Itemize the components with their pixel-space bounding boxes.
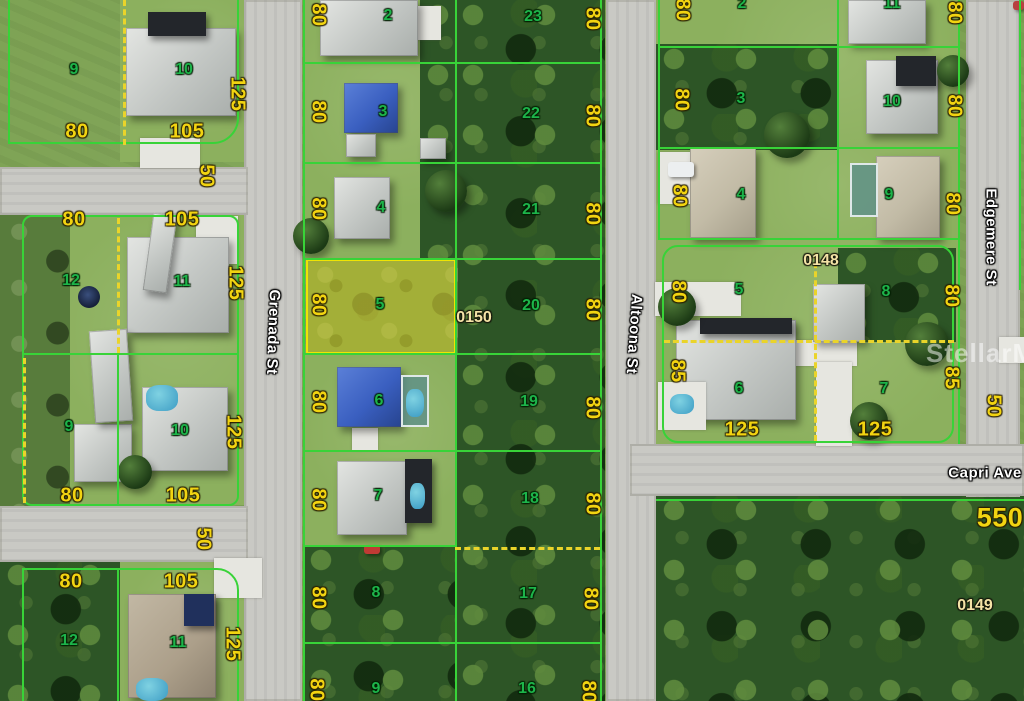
parcel-id-0150: 0150: [456, 309, 492, 327]
street-label-capri-ave: Capri Ave: [948, 465, 1021, 482]
parcel-id-0148: 0148: [803, 252, 839, 270]
parcel-id-0149: 0149: [957, 597, 993, 615]
aerial-parcel-map[interactable]: 2233224215206197188179169101211910121121…: [0, 0, 1024, 701]
parcel-id-layer: 015001480149: [0, 0, 1024, 701]
stellar-mls-watermark: StellarMLS: [926, 338, 1024, 369]
street-label-grenada-st: Grenada St: [263, 289, 283, 375]
street-label-edgemere-st: Edgemere St: [983, 188, 1000, 285]
